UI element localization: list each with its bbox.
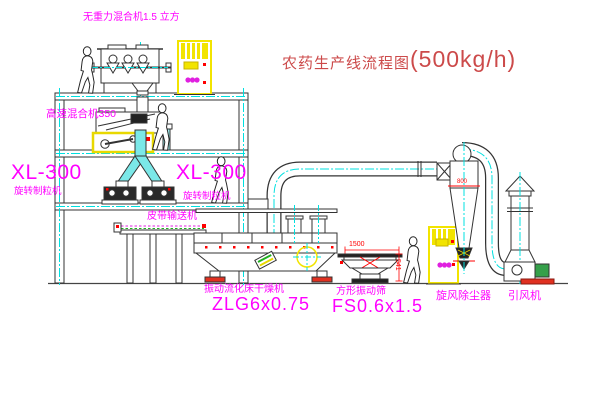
belt-conveyor (114, 223, 206, 283)
title-chinese: 农药生产线流程图 (282, 46, 410, 73)
label-dryer-model: ZLG6x0.75 (212, 295, 310, 313)
granulator-right (140, 181, 176, 204)
label-granulator-left-name: 旋转制粒机 (14, 187, 62, 197)
label-screen-model: FS0.6x1.5 (332, 297, 423, 315)
control-cabinet-top (174, 41, 215, 95)
dryer-right-mount (312, 277, 332, 282)
worker-figure-roof (78, 47, 94, 93)
label-granulator-right-name: 旋转制粒机 (183, 192, 231, 202)
label-fan: 引风机 (508, 291, 541, 302)
vibrating-screen (338, 247, 403, 283)
dim-screen-length: 1500 (349, 241, 365, 248)
label-high-speed-mixer: 高速混合机350 (46, 109, 116, 120)
gravity-free-mixer (89, 45, 171, 112)
granulator-left (102, 181, 138, 204)
fan-motor (535, 264, 549, 277)
transfer-duct (248, 199, 268, 209)
label-cyclone: 旋风除尘器 (436, 291, 491, 302)
label-belt-conveyor: 皮带输送机 (147, 212, 197, 222)
fluid-bed-dryer (194, 205, 337, 282)
label-granulator-left-model: XL-300 (11, 162, 82, 183)
label-top-mixer: 无重力混合机1.5 立方 (83, 13, 180, 23)
worker-figure-ground (404, 237, 420, 283)
fan-base (521, 279, 554, 284)
induced-draft-fan (504, 262, 554, 284)
title-capacity: (500kg/h) (410, 46, 516, 73)
drawing-canvas: 农药生产线流程图 (500kg/h) 无重力混合机1.5 立方 高速混合机350… (0, 0, 600, 403)
label-granulator-right-model: XL-300 (176, 162, 247, 183)
dim-screen-height: 541 (394, 259, 401, 271)
dim-cyclone-marker: 800 (457, 179, 467, 185)
control-cabinet-ground (426, 227, 461, 284)
dryer-left-mount (205, 277, 225, 282)
drawing-title: 农药生产线流程图 (500kg/h) (282, 46, 516, 73)
